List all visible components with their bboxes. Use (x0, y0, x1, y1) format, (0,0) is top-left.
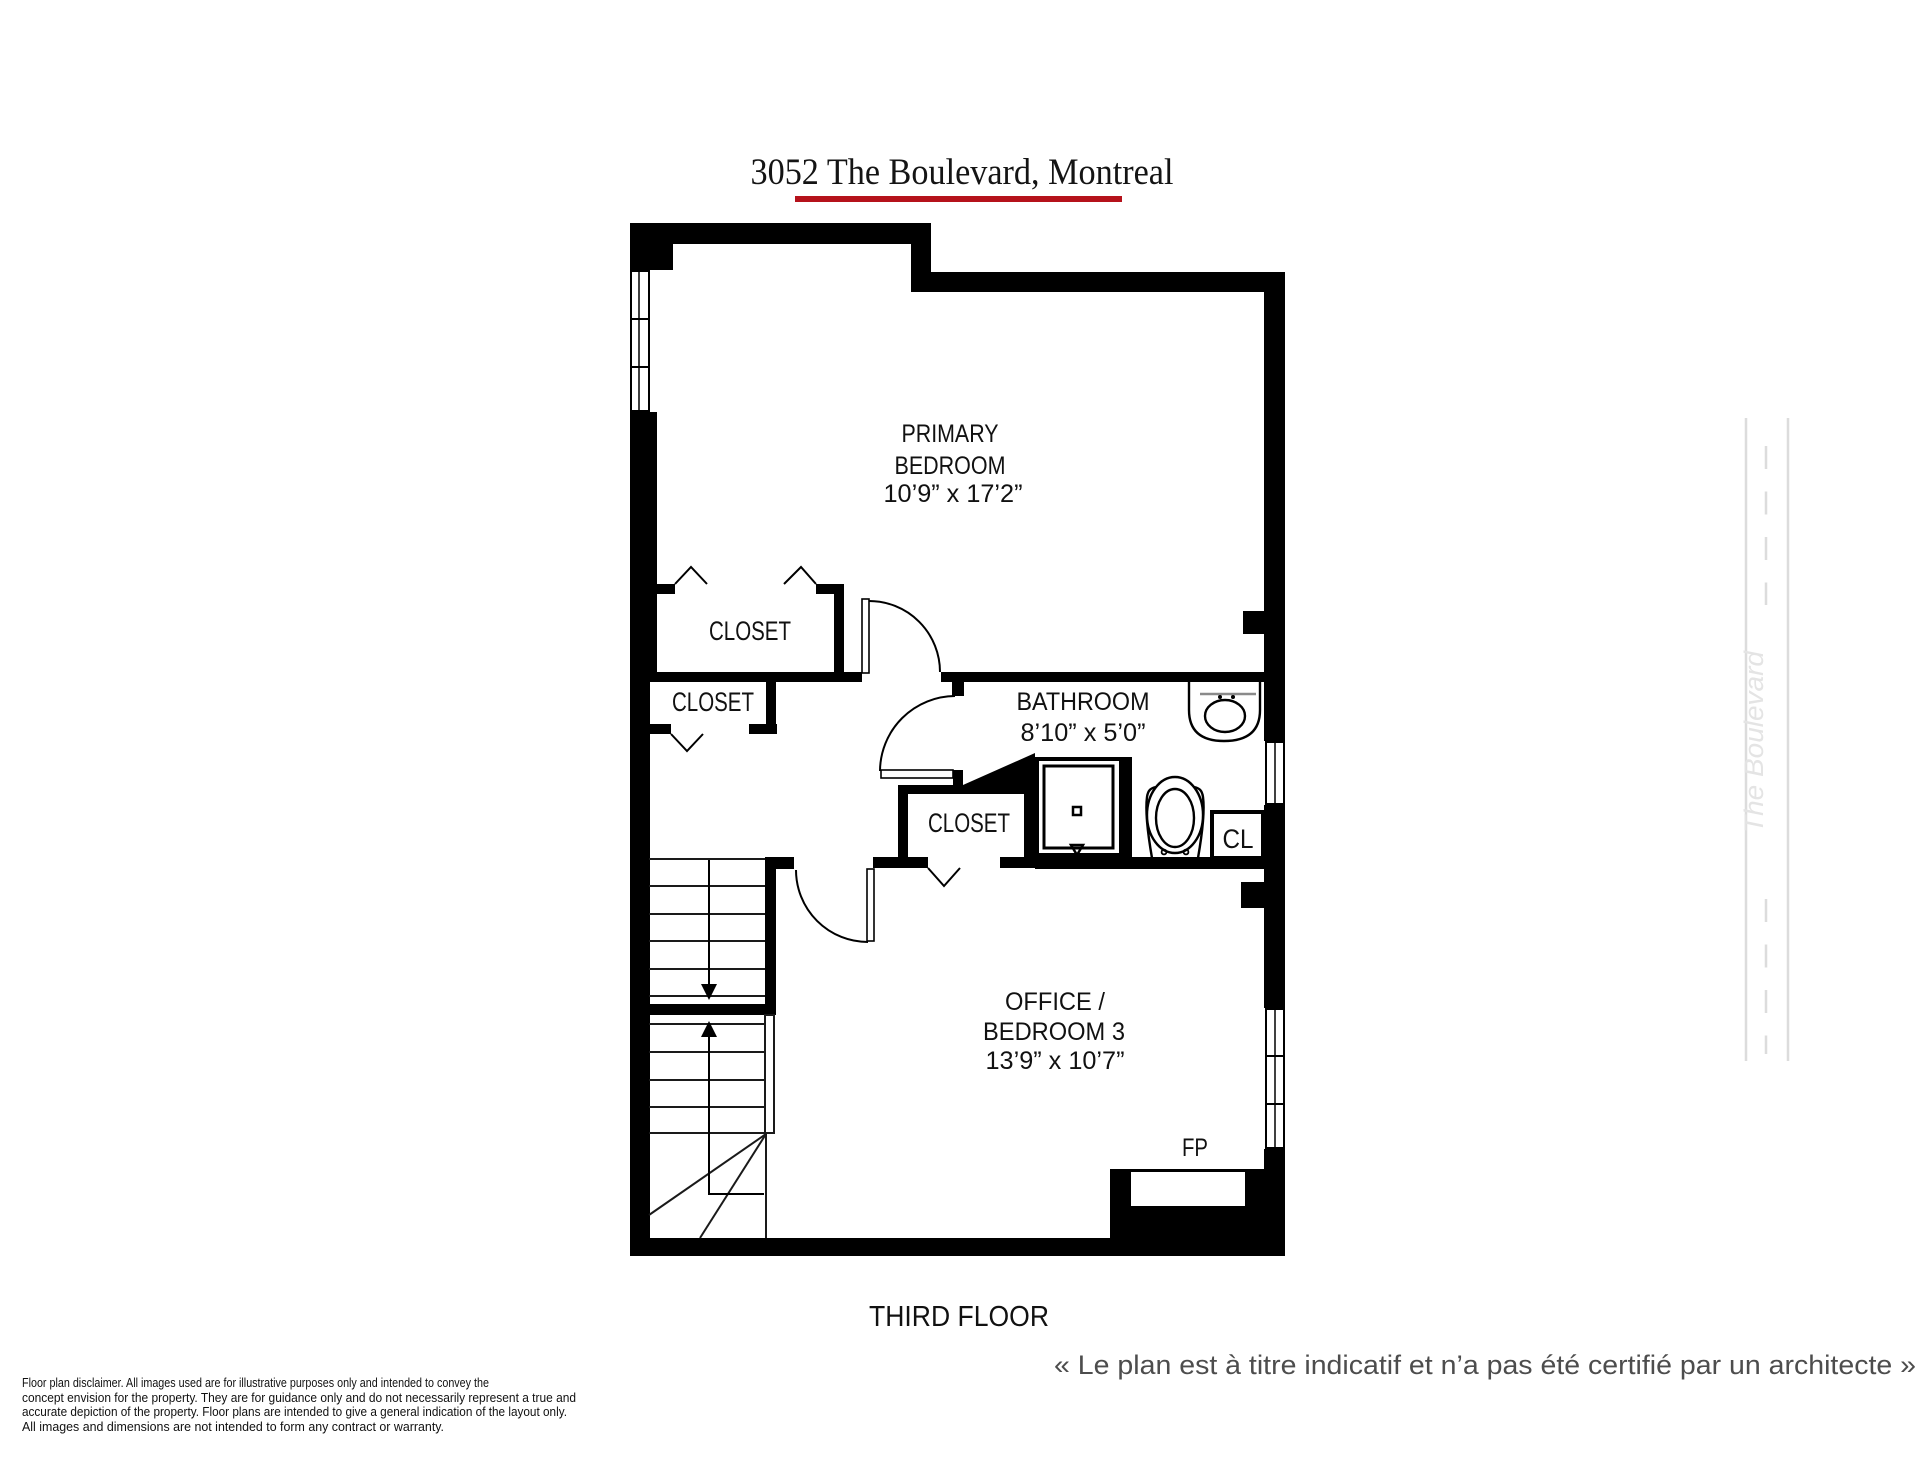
svg-text:8’10” x 5’0”: 8’10” x 5’0” (1021, 719, 1146, 747)
svg-text:Floor plan disclaimer. All ima: Floor plan disclaimer. All images used a… (22, 1376, 489, 1390)
svg-text:The Boulevard: The Boulevard (1739, 650, 1769, 833)
svg-text:concept envision for the prope: concept envision for the property. They … (22, 1391, 576, 1405)
svg-text:CL: CL (1223, 824, 1254, 854)
svg-text:13’9” x 10’7”: 13’9” x 10’7” (986, 1047, 1125, 1075)
svg-text:BEDROOM: BEDROOM (895, 452, 1006, 480)
svg-text:CLOSET: CLOSET (928, 808, 1010, 838)
svg-text:« Le plan est à titre indicati: « Le plan est à titre indicatif et n’a p… (1054, 1350, 1916, 1380)
svg-text:accurate depiction of the prop: accurate depiction of the property. Floo… (22, 1405, 567, 1419)
svg-text:CLOSET: CLOSET (709, 616, 791, 646)
svg-text:10’9” x 17’2”: 10’9” x 17’2” (884, 480, 1023, 508)
svg-text:All images and dimensions are: All images and dimensions are not intend… (22, 1420, 444, 1434)
svg-text:3052 The Boulevard, Montreal: 3052 The Boulevard, Montreal (751, 152, 1174, 193)
svg-text:CLOSET: CLOSET (672, 687, 754, 717)
svg-text:BEDROOM 3: BEDROOM 3 (983, 1018, 1125, 1046)
svg-text:PRIMARY: PRIMARY (902, 420, 999, 448)
svg-text:OFFICE /: OFFICE / (1005, 988, 1105, 1016)
svg-text:THIRD FLOOR: THIRD FLOOR (869, 1301, 1049, 1333)
svg-text:FP: FP (1182, 1134, 1208, 1162)
svg-text:BATHROOM: BATHROOM (1017, 688, 1150, 716)
